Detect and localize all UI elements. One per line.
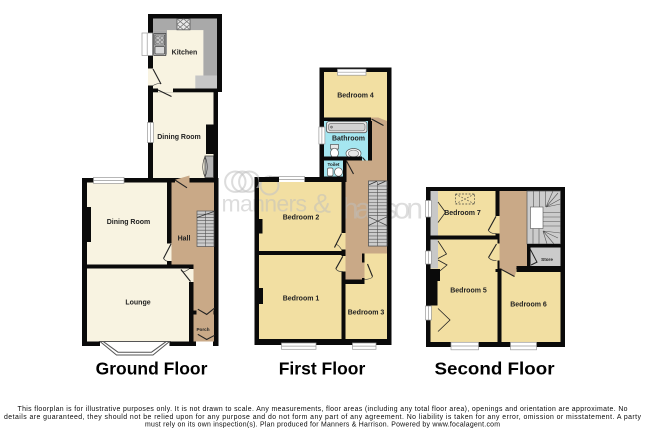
svg-text:Porch: Porch — [196, 327, 209, 332]
svg-text:must rely on its own inspectio: must rely on its own inspection(s). Plan… — [145, 422, 500, 429]
svg-text:Bedroom 6: Bedroom 6 — [510, 302, 547, 309]
svg-text:Hall: Hall — [178, 236, 191, 243]
svg-text:Dining Room: Dining Room — [157, 134, 201, 141]
svg-text:Toilet: Toilet — [328, 162, 340, 167]
svg-text:Dining Room: Dining Room — [107, 219, 151, 226]
svg-text:Bathroom: Bathroom — [332, 136, 365, 143]
svg-text:Second Floor: Second Floor — [435, 359, 555, 379]
svg-text:Bedroom 7: Bedroom 7 — [444, 210, 481, 217]
svg-text:Bedroom 1: Bedroom 1 — [283, 296, 320, 303]
svg-text:Bedroom 4: Bedroom 4 — [337, 93, 374, 100]
svg-text:Bedroom 3: Bedroom 3 — [348, 310, 385, 317]
svg-text:Bedroom 5: Bedroom 5 — [450, 288, 487, 295]
svg-text:manners: manners — [222, 191, 308, 217]
svg-text:Lounge: Lounge — [125, 300, 150, 307]
svg-text:This floorplan is for illustra: This floorplan is for illustrative purpo… — [17, 406, 627, 413]
svg-text:First Floor: First Floor — [279, 359, 366, 379]
svg-text:Kitchen: Kitchen — [172, 50, 198, 57]
svg-text:details are guaranteed, they s: details are guaranteed, they should not … — [4, 414, 642, 421]
svg-text:Ground Floor: Ground Floor — [96, 359, 208, 379]
svg-text:&: & — [313, 189, 331, 219]
svg-text:Store: Store — [541, 257, 553, 262]
